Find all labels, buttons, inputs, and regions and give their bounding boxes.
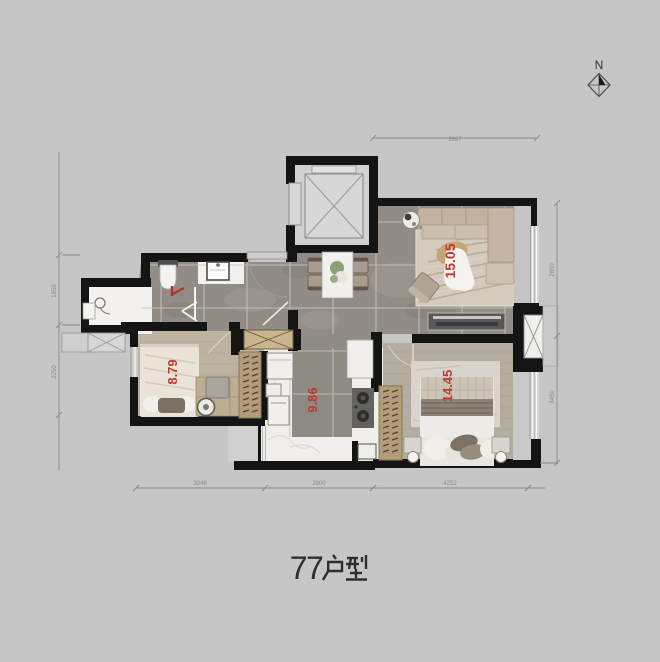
svg-text:1850: 1850 bbox=[52, 284, 58, 298]
svg-text:4252: 4252 bbox=[443, 481, 457, 487]
svg-text:3046: 3046 bbox=[193, 481, 207, 487]
svg-text:2900: 2900 bbox=[312, 481, 326, 487]
svg-text:9.86: 9.86 bbox=[305, 387, 320, 412]
svg-text:N: N bbox=[595, 58, 604, 72]
svg-text:15.05: 15.05 bbox=[442, 243, 458, 278]
svg-text:14.45: 14.45 bbox=[440, 370, 455, 403]
svg-text:2850: 2850 bbox=[550, 263, 556, 277]
svg-text:77: 77 bbox=[290, 550, 323, 586]
svg-text:3450: 3450 bbox=[550, 390, 556, 404]
svg-text:3867: 3867 bbox=[448, 137, 462, 143]
svg-text:2250: 2250 bbox=[52, 365, 58, 379]
svg-text:8.79: 8.79 bbox=[165, 359, 180, 384]
